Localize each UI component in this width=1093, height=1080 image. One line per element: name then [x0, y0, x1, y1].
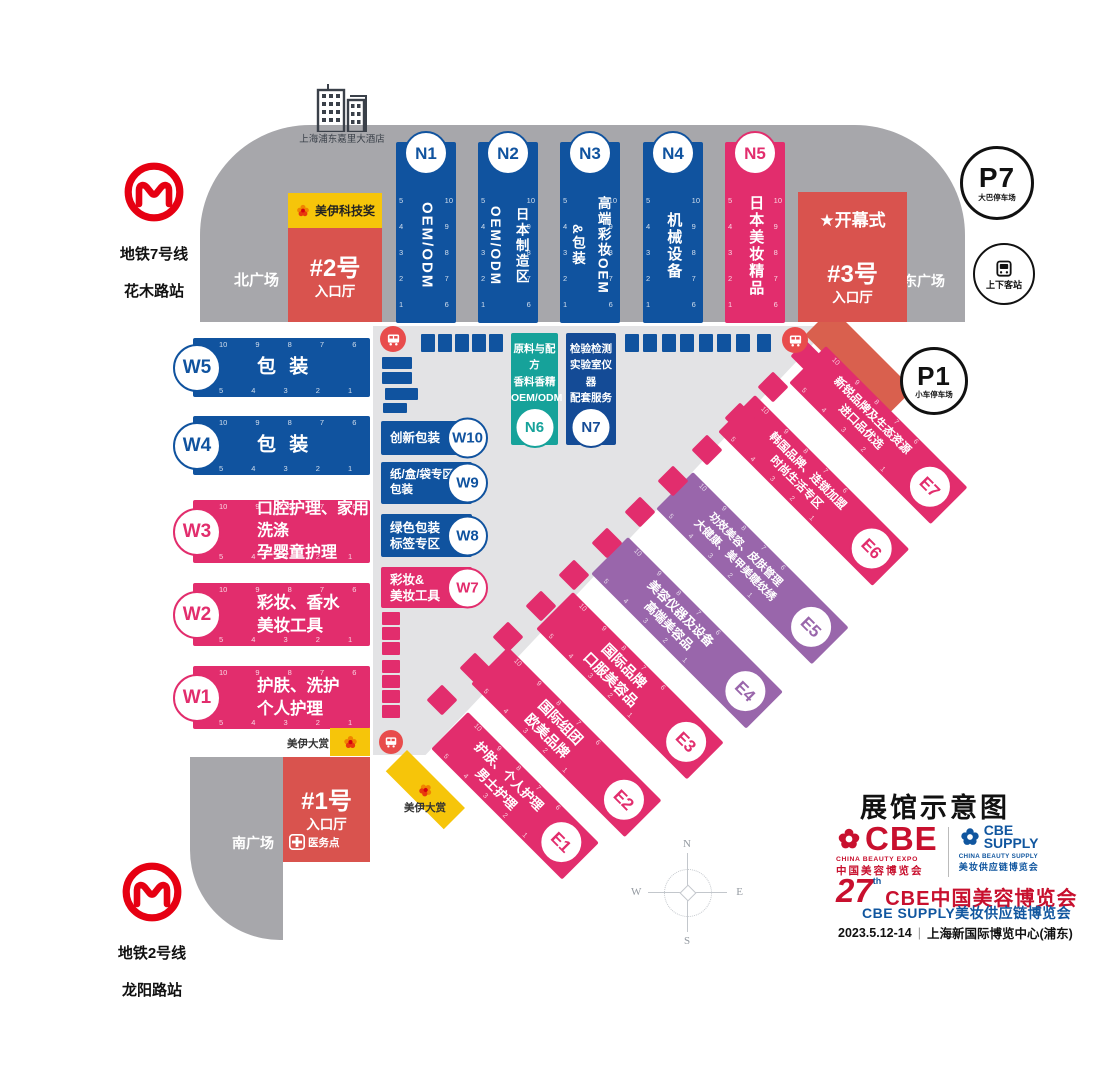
hall-n7-label: 检验检测 实验室仪器 配套服务 — [566, 341, 616, 406]
booth-numbers: 10 9 8 7 6 — [609, 188, 617, 318]
hall-n6: 原料与配方 香料香精 OEM/ODM N6 — [511, 333, 558, 445]
hall-w9-badge: W9 — [447, 463, 488, 504]
parking-p7-id: P7 — [979, 164, 1015, 192]
booth-block-small — [757, 334, 771, 352]
compass-south: S — [684, 935, 690, 947]
tech-award-label: 美伊科技奖 — [315, 202, 375, 219]
hotel-icon — [310, 82, 374, 137]
metro-line2-icon — [122, 862, 182, 927]
compass-east: E — [736, 886, 743, 898]
cbe-supply-logo-en: CHINA BEAUTY SUPPLY — [959, 853, 1039, 860]
entrance-1-number: #1号 — [283, 781, 370, 816]
edition-suffix: th — [873, 876, 882, 886]
booth-numbers: 5 4 3 2 1 — [563, 188, 567, 318]
metro-line2-station: 龙阳路站 — [122, 982, 182, 999]
bus-station-icon — [994, 259, 1014, 279]
hall-w1-label: 护肤、洗护 个人护理 — [257, 674, 340, 720]
booth-block-small — [736, 334, 750, 352]
booth-block-small — [662, 334, 676, 352]
hall-n4: N4 机械设备 5 4 3 2 1 10 9 8 7 6 — [643, 142, 703, 323]
parking-p7-badge: P7 大巴停车场 — [960, 146, 1034, 220]
grand-award-label: 美伊大赏 — [287, 736, 329, 751]
meiyi-flower-icon — [342, 734, 359, 751]
metro-line2-label: 地铁2号线 龙阳路站 — [102, 926, 202, 1001]
booth-numbers: 5 4 3 2 1 — [219, 635, 352, 644]
compass-rose: N E S W — [640, 845, 735, 940]
cbe-supply-flower-icon — [959, 826, 981, 848]
hall-n7: 检验检测 实验室仪器 配套服务 N7 — [566, 333, 616, 445]
hall-w2-label: 彩妆、香水 美妆工具 — [257, 591, 340, 637]
parking-p1-label: 小车停车场 — [915, 391, 953, 399]
booth-block-small — [382, 612, 400, 625]
hall-n3-badge: N3 — [568, 131, 612, 175]
booth-block-small — [382, 690, 400, 703]
cbe-supply-logo-cn: 美妆供应链博览会 — [959, 860, 1039, 873]
medical-point-label: 医务点 — [308, 835, 340, 850]
pickup-station-badge: 上下客站 — [973, 243, 1035, 305]
entrance-2: #2号 入口厅 — [288, 228, 382, 322]
bus-stop-icon — [380, 326, 406, 352]
metro-line7-label: 地铁7号线 花木路站 — [104, 227, 204, 302]
entrance-2-number: #2号 — [288, 248, 382, 283]
booth-numbers: 10 9 8 7 6 — [692, 188, 700, 318]
hall-w3: 10 9 8 7 6 W3 口腔护理、家用洗涤 孕婴童护理 5 4 3 2 1 — [193, 500, 370, 563]
entrance-1-label: 入口厅 — [283, 813, 370, 833]
booth-block-small — [382, 642, 400, 655]
event-venue: 上海新国际博览中心(浦东) — [927, 923, 1073, 942]
star-icon: ★ — [819, 211, 834, 230]
hall-w4-label: 包 装 — [257, 432, 312, 459]
north-plaza-label: 北广场 — [234, 269, 279, 290]
tech-award-banner: 美伊科技奖 — [288, 193, 382, 228]
booth-block-small — [680, 334, 694, 352]
exhibition-map: 北广场 东广场 南广场 上海浦东嘉里大酒店 — [0, 0, 1093, 1080]
compass-north: N — [683, 838, 691, 850]
bus-stop-icon — [379, 730, 403, 754]
metro-line2-line: 地铁2号线 — [118, 945, 186, 962]
hall-w10-badge: W10 — [447, 418, 488, 459]
booth-block-small — [382, 675, 400, 688]
east-plaza-label: 东广场 — [903, 271, 945, 291]
booth-numbers: 10 9 8 7 6 — [219, 340, 356, 349]
hall-w4: 10 9 8 7 6 W4 包 装 5 4 3 2 1 — [193, 416, 370, 475]
hall-w7-badge: W7 — [447, 567, 488, 608]
hall-w4-badge: W4 — [173, 422, 221, 470]
booth-numbers: 5 4 3 2 1 — [219, 552, 352, 561]
parking-p1-id: P1 — [917, 363, 951, 389]
hall-w10-label: 创新包装 — [390, 430, 440, 446]
booth-numbers: 10 9 8 7 6 — [527, 188, 535, 318]
hall-n1-badge: N1 — [404, 131, 448, 175]
booth-block-small — [382, 705, 400, 718]
hall-n1: N1 OEM/ODM 5 4 3 2 1 10 9 8 7 6 — [396, 142, 456, 323]
entrance-1: #1号 入口厅 医务点 — [283, 757, 370, 862]
booth-block-small — [489, 334, 503, 352]
hall-w5-label: 包 装 — [257, 354, 312, 381]
hall-w9: 纸/盒/袋专区 包装 W9 — [381, 462, 472, 504]
cbe-supply-logo-text: CBE SUPPLY — [984, 824, 1039, 851]
entrance-2-label: 入口厅 — [288, 280, 382, 300]
hall-w5: 10 9 8 7 6 W5 包 装 5 4 3 2 1 — [193, 338, 370, 397]
booth-numbers: 5 4 3 2 1 — [219, 718, 352, 727]
entrance-3-number: #3号 — [798, 254, 907, 289]
booth-block-small — [472, 334, 486, 352]
booth-block-small — [382, 372, 412, 384]
booth-block-small — [382, 627, 400, 640]
opening-ceremony-label: 开幕式 — [835, 211, 886, 230]
meiyi-flower-icon — [413, 778, 437, 802]
hall-n2-badge: N2 — [486, 131, 530, 175]
cbe-logo-text: CBE — [865, 824, 938, 854]
hall-w3-badge: W3 — [173, 508, 221, 556]
parking-p7-label: 大巴停车场 — [978, 194, 1016, 202]
hall-w9-label: 纸/盒/袋专区 包装 — [390, 468, 454, 498]
booth-numbers: 10 9 8 7 6 — [774, 188, 782, 318]
hall-n6-badge: N6 — [514, 407, 555, 448]
supply-name-line: CBE SUPPLY美妆供应链博览会 — [862, 903, 1071, 923]
booth-numbers: 5 4 3 2 1 — [219, 464, 352, 473]
booth-block-small — [625, 334, 639, 352]
grand-award-banner — [330, 728, 370, 756]
hall-w8-label: 绿色包装 标签专区 — [390, 519, 440, 552]
booth-numbers: 10 9 8 7 6 — [445, 188, 453, 318]
grand-award-label: 美伊大赏 — [404, 800, 446, 815]
hall-w7-label: 彩妆& 美妆工具 — [390, 571, 440, 604]
booth-numbers: 5 4 3 2 1 — [728, 188, 732, 318]
entrance-3: ★开幕式 #3号 入口厅 — [798, 192, 907, 322]
booth-block-small — [385, 388, 418, 400]
medical-cross-icon — [289, 834, 305, 850]
hall-n5-badge: N5 — [733, 131, 777, 175]
event-date-venue: 2023.5.12-14 | 上海新国际博览中心(浦东) — [838, 923, 1073, 942]
entrance-3-label: 入口厅 — [798, 286, 907, 306]
booth-numbers: 5 4 3 2 1 — [219, 386, 352, 395]
metro-line7-station: 花木路站 — [124, 283, 184, 300]
booth-numbers: 10 9 8 7 6 — [219, 418, 356, 427]
pickup-station-label: 上下客站 — [986, 281, 1022, 290]
booth-block-small — [382, 357, 412, 369]
hotel-label: 上海浦东嘉里大酒店 — [297, 131, 387, 145]
cbe-supply-logo: CBE SUPPLY CHINA BEAUTY SUPPLY 美妆供应链博览会 — [959, 824, 1039, 873]
booth-block-small — [421, 334, 435, 352]
metro-line7-icon — [124, 162, 184, 227]
booth-block-small — [717, 334, 731, 352]
hall-w8-badge: W8 — [447, 515, 488, 556]
bus-stop-icon — [782, 327, 808, 353]
booth-block-small — [699, 334, 713, 352]
hall-w7: 彩妆& 美妆工具 W7 — [381, 567, 472, 608]
hall-n7-badge: N7 — [571, 407, 612, 448]
date-divider: | — [918, 926, 921, 940]
booth-block-small — [438, 334, 452, 352]
hall-n6-label: 原料与配方 香料香精 OEM/ODM — [511, 341, 558, 406]
cbe-logo: CBE CHINA BEAUTY EXPO 中国美容博览会 — [836, 824, 938, 878]
booth-block-small — [383, 403, 407, 413]
booth-numbers: 5 4 3 2 1 — [481, 188, 485, 318]
hall-n2: N2 日本制造区 OEM/ODM 5 4 3 2 1 10 9 8 7 6 — [478, 142, 538, 323]
booth-numbers: 5 4 3 2 1 — [646, 188, 650, 318]
hall-n3: N3 高端彩妆OEM &包装 5 4 3 2 1 10 9 8 7 6 — [560, 142, 620, 323]
south-plaza: 南广场 — [190, 757, 283, 940]
hall-w2: 10 9 8 7 6 W2 彩妆、香水 美妆工具 5 4 3 2 1 — [193, 583, 370, 646]
hall-w5-badge: W5 — [173, 344, 221, 392]
event-date: 2023.5.12-14 — [838, 926, 912, 940]
expo-logos: CBE CHINA BEAUTY EXPO 中国美容博览会 CBE SUPPLY… — [836, 824, 1039, 878]
logo-divider — [948, 827, 949, 877]
meiyi-flower-icon — [295, 203, 311, 219]
hall-w8: 绿色包装 标签专区 W8 — [381, 514, 472, 557]
booth-block-small — [382, 660, 400, 673]
hall-w10: 创新包装 W10 — [381, 421, 472, 455]
compass-west: W — [631, 886, 641, 898]
south-plaza-label: 南广场 — [232, 833, 274, 853]
metro-line7-line: 地铁7号线 — [120, 246, 188, 263]
cbe-flower-icon — [836, 826, 862, 852]
hall-n5: N5 日本美妆精品 5 4 3 2 1 10 9 8 7 6 — [725, 142, 785, 323]
hall-w2-badge: W2 — [173, 591, 221, 639]
booth-block-small — [643, 334, 657, 352]
edition-number: 27 — [836, 876, 873, 906]
hall-w1-badge: W1 — [173, 674, 221, 722]
hall-w1: 10 9 8 7 6 W1 护肤、洗护 个人护理 5 4 3 2 1 — [193, 666, 370, 729]
hall-n4-badge: N4 — [651, 131, 695, 175]
booth-block-small — [455, 334, 469, 352]
booth-numbers: 5 4 3 2 1 — [399, 188, 403, 318]
parking-p1-badge: P1 小车停车场 — [900, 347, 968, 415]
